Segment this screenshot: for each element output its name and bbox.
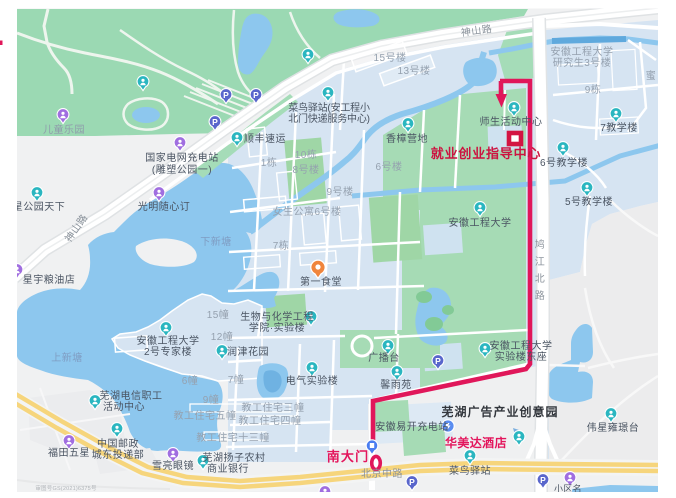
svg-text:生物与化学工程: 生物与化学工程 <box>240 310 314 323</box>
svg-text:中国邮政: 中国邮政 <box>97 437 139 450</box>
svg-text:教工住宅五幢: 教工住宅五幢 <box>174 409 237 422</box>
svg-text:就业创业指导中心: 就业创业指导中心 <box>431 146 541 161</box>
svg-text:活动中心: 活动中心 <box>103 400 145 413</box>
svg-text:芜湖电信职工: 芜湖电信职工 <box>100 389 163 402</box>
svg-text:15幢: 15幢 <box>207 308 230 321</box>
svg-text:9号楼: 9号楼 <box>326 185 353 198</box>
svg-text:(雕塑公园一): (雕塑公园一) <box>152 163 212 176</box>
svg-text:路: 路 <box>535 289 546 302</box>
svg-text:12幢: 12幢 <box>211 330 234 343</box>
svg-text:教工住宅三幢: 教工住宅三幢 <box>242 401 305 414</box>
svg-text:润津花园: 润津花园 <box>227 345 269 358</box>
svg-text:9幢: 9幢 <box>203 393 220 406</box>
svg-text:9栋: 9栋 <box>585 83 602 96</box>
svg-text:上新塘: 上新塘 <box>51 351 83 364</box>
svg-text:蜜: 蜜 <box>646 69 657 82</box>
svg-text:7教学楼: 7教学楼 <box>600 121 638 134</box>
svg-text:广播台: 广播台 <box>368 351 400 364</box>
svg-text:鸠: 鸠 <box>535 238 546 251</box>
svg-text:实验楼东座: 实验楼东座 <box>495 350 548 363</box>
svg-text:北门快递服务中心): 北门快递服务中心) <box>288 112 370 125</box>
svg-text:研究生3号楼: 研究生3号楼 <box>553 56 612 69</box>
svg-text:下新塘: 下新塘 <box>200 235 232 248</box>
svg-text:电气实验楼: 电气实验楼 <box>286 374 339 387</box>
svg-text:国家电网充电站: 国家电网充电站 <box>145 151 219 164</box>
svg-text:芜湖扬子农村: 芜湖扬子农村 <box>203 451 266 464</box>
svg-text:伟星雍璟台: 伟星雍璟台 <box>587 421 640 434</box>
svg-text:福田五星: 福田五星 <box>48 446 90 459</box>
svg-text:顺丰速运: 顺丰速运 <box>244 132 286 145</box>
svg-text:芜湖广告产业创意园: 芜湖广告产业创意园 <box>441 404 558 419</box>
svg-text:安徽工程大学: 安徽工程大学 <box>490 339 553 352</box>
svg-text:城东投递部: 城东投递部 <box>92 448 145 461</box>
svg-text:6号楼: 6号楼 <box>375 160 402 173</box>
svg-text:安徽工程大学: 安徽工程大学 <box>449 216 512 229</box>
svg-text:教工住宅十三幢: 教工住宅十三幢 <box>196 431 270 444</box>
svg-text:儿童乐园: 儿童乐园 <box>43 123 85 136</box>
svg-text:安徽工程大学: 安徽工程大学 <box>551 45 614 58</box>
svg-text:6幢: 6幢 <box>182 374 199 387</box>
svg-text:江: 江 <box>535 256 546 268</box>
svg-text:安徽工程大学: 安徽工程大学 <box>137 334 200 347</box>
svg-text:南大门: 南大门 <box>327 449 370 464</box>
svg-text:师生活动中心: 师生活动中心 <box>480 115 543 128</box>
svg-text:7幢: 7幢 <box>228 373 245 386</box>
svg-text:北京中路: 北京中路 <box>361 467 403 480</box>
svg-text:光明随心订: 光明随心订 <box>138 200 191 213</box>
svg-text:8号楼: 8号楼 <box>292 163 319 176</box>
svg-text:香樟营地: 香樟营地 <box>386 132 428 145</box>
svg-text:教工住宅四幢: 教工住宅四幢 <box>239 414 302 427</box>
svg-text:馨雨苑: 馨雨苑 <box>380 378 412 391</box>
svg-text:13号楼: 13号楼 <box>397 64 430 77</box>
svg-text:商业银行: 商业银行 <box>207 462 249 475</box>
svg-text:星宇粮油店: 星宇粮油店 <box>23 273 76 286</box>
svg-text:1栋: 1栋 <box>261 156 278 169</box>
svg-text:星公园天下: 星公园天下 <box>13 201 66 213</box>
svg-text:北: 北 <box>535 273 546 285</box>
svg-text:学院·实验楼: 学院·实验楼 <box>249 321 305 334</box>
svg-text:审图号GS(2021)6375号: 审图号GS(2021)6375号 <box>35 484 97 492</box>
svg-text:15号楼: 15号楼 <box>373 51 406 64</box>
svg-text:菜鸟驿站: 菜鸟驿站 <box>449 464 491 477</box>
svg-text:雪亮眼镜: 雪亮眼镜 <box>152 459 194 472</box>
svg-text:第一食堂: 第一食堂 <box>300 275 342 288</box>
svg-text:菜鸟驿站(安工程小: 菜鸟驿站(安工程小 <box>288 101 370 114</box>
svg-text:7栋: 7栋 <box>273 239 290 252</box>
svg-text:2号专家楼: 2号专家楼 <box>144 345 192 358</box>
svg-text:10栋: 10栋 <box>295 148 318 161</box>
svg-text:6号教学楼: 6号教学楼 <box>540 156 588 169</box>
svg-text:女生公寓6号楼: 女生公寓6号楼 <box>272 205 341 218</box>
svg-text:5号教学楼: 5号教学楼 <box>565 195 613 208</box>
svg-text:华美达酒店: 华美达酒店 <box>445 435 507 450</box>
svg-text:安徽易开充电站: 安徽易开充电站 <box>375 420 449 433</box>
